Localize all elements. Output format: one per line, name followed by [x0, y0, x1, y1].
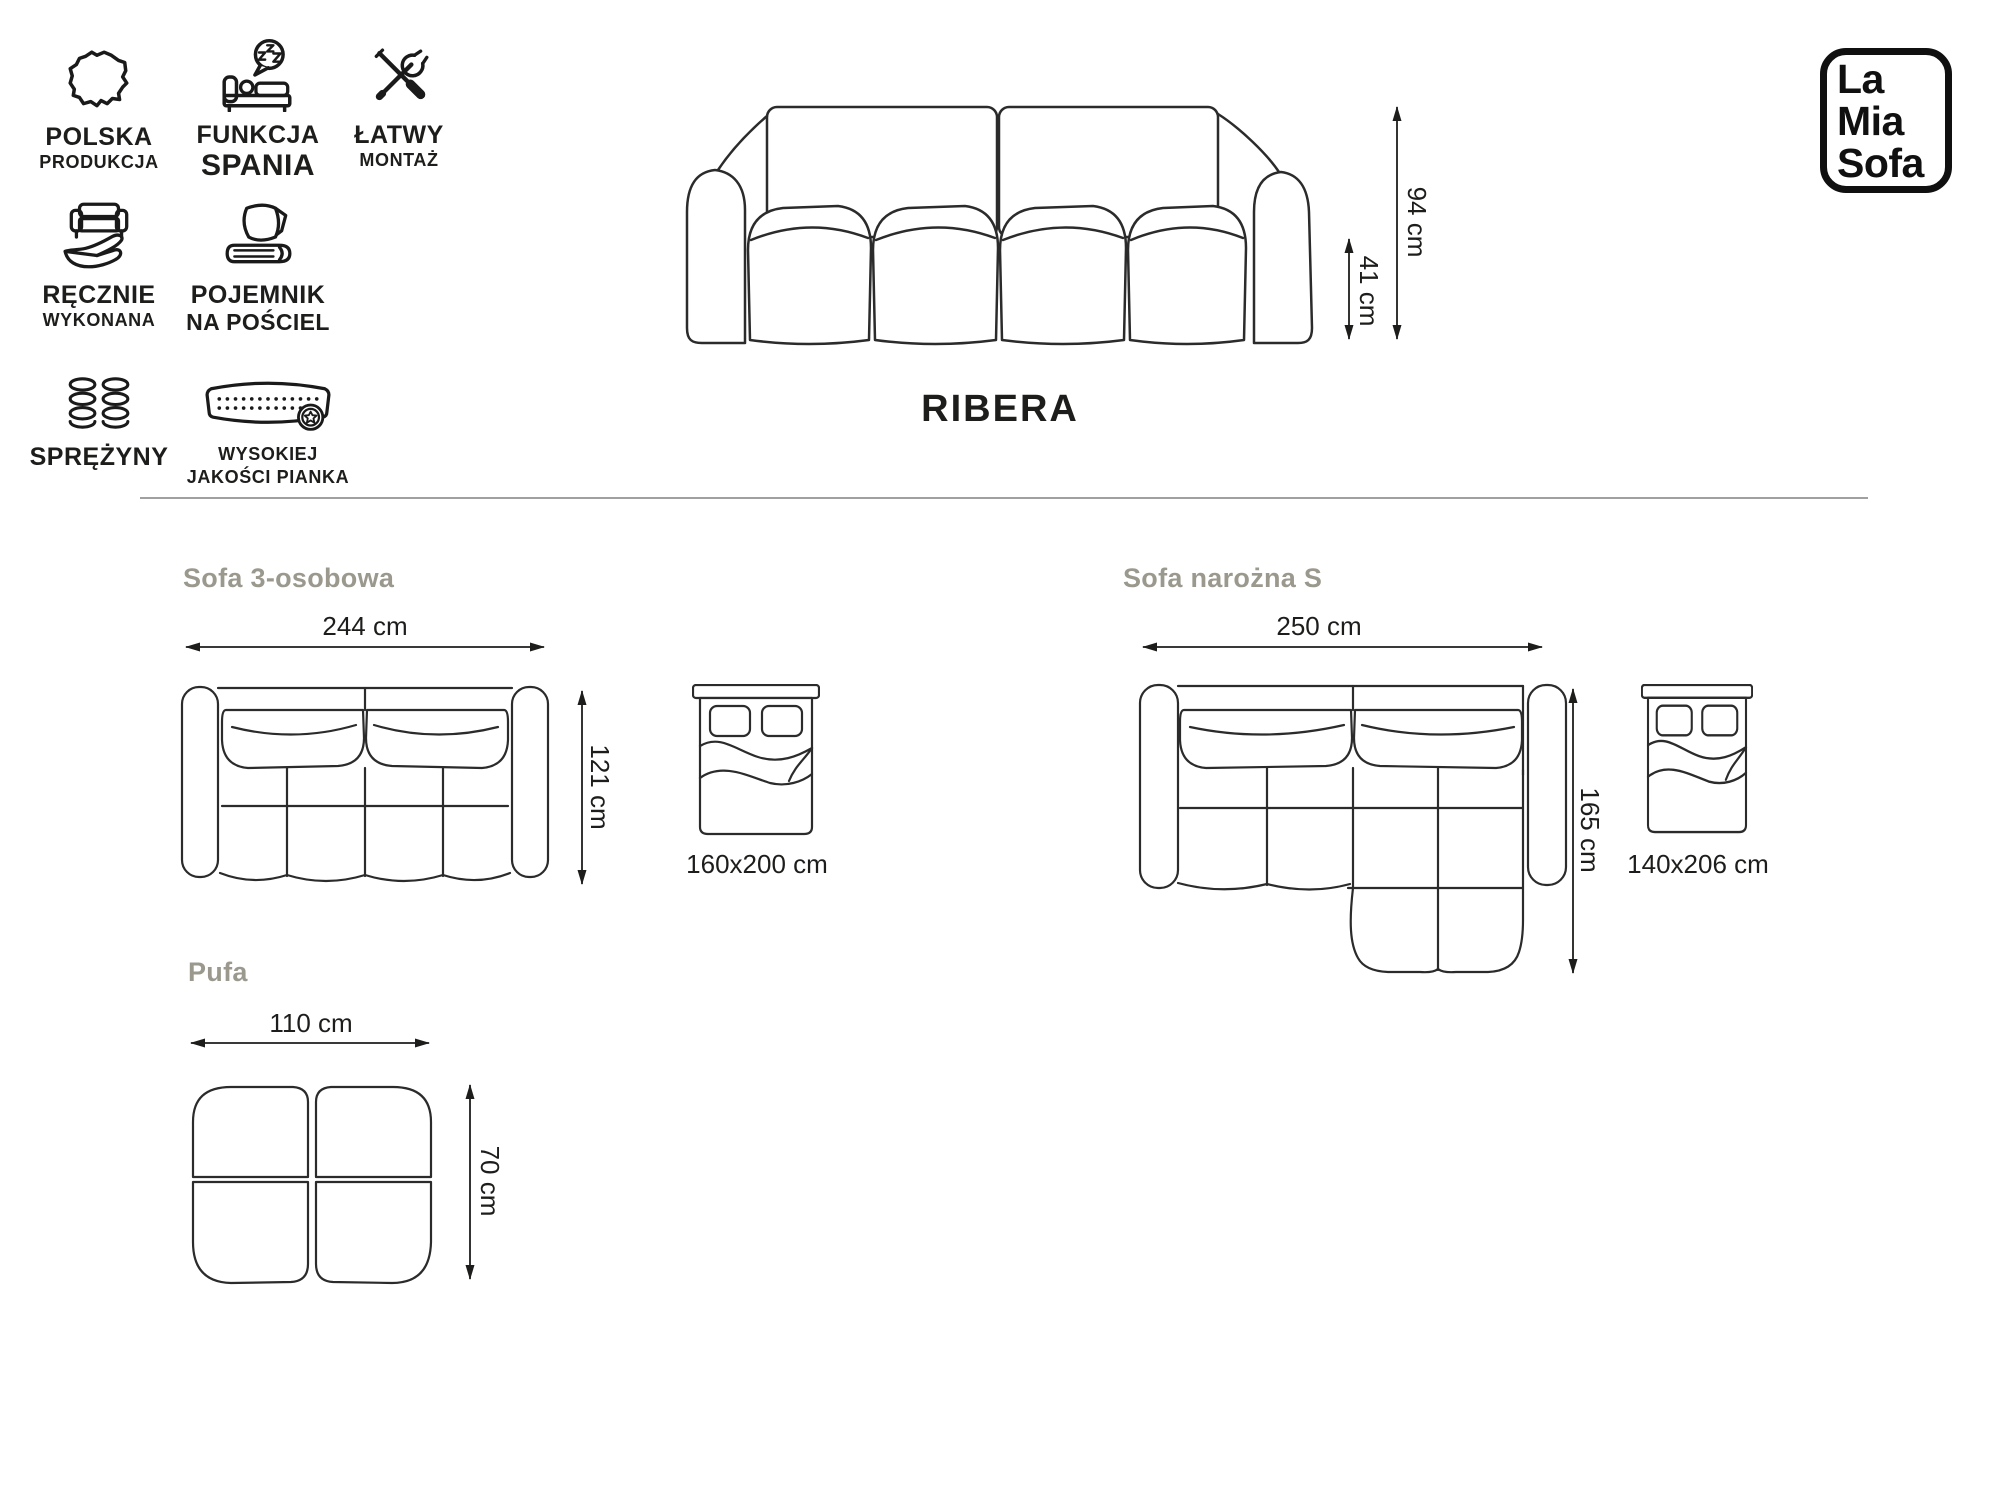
sleep-function-icon — [216, 36, 300, 112]
feature-sublabel: JAKOŚCI PIANKA — [187, 466, 349, 489]
height-dimension-label: 94 cm — [1402, 152, 1432, 292]
bed-size-label: 160x200 cm — [657, 849, 857, 880]
feature-label: WYSOKIEJ — [218, 443, 318, 466]
feature-label: ŁATWY — [354, 121, 444, 149]
feature-label: POLSKA — [45, 123, 152, 151]
springs-icon — [64, 372, 134, 434]
width-dimension-label: 244 cm — [265, 611, 465, 642]
tools-icon — [366, 36, 432, 112]
feature-polska-produkcja: POLSKA PRODUKCJA — [14, 38, 184, 174]
bed-icon — [692, 684, 820, 836]
divider — [140, 497, 1868, 499]
pufa-top-view-drawing — [185, 1080, 439, 1290]
depth-dimension-label: 70 cm — [475, 1111, 505, 1251]
feature-label: RĘCZNIE — [42, 281, 155, 309]
width-dimension-arrow — [183, 639, 547, 655]
feature-sublabel: MONTAŻ — [359, 149, 438, 172]
variant-label-sofa-3-osobowa: Sofa 3-osobowa — [183, 563, 394, 594]
width-dimension-arrow — [1140, 639, 1545, 655]
sofa-front-view-drawing — [630, 90, 1330, 355]
seat-height-dimension-label: 41 cm — [1354, 221, 1384, 361]
hand-sofa-icon — [59, 196, 139, 272]
width-dimension-label: 250 cm — [1219, 611, 1419, 642]
brand-logo: La Mia Sofa — [1820, 48, 1952, 193]
feature-label: POJEMNIK — [191, 281, 326, 309]
feature-wysokiej-jakosci-pianka: WYSOKIEJ JAKOŚCI PIANKA — [168, 372, 368, 490]
feature-recznie-wykonana: RĘCZNIE WYKONANA — [14, 196, 184, 332]
feature-sublabel: WYKONANA — [43, 309, 156, 332]
feature-latwy-montaz: ŁATWY MONTAŻ — [314, 36, 484, 172]
spec-sheet: POLSKA PRODUKCJA FUNKCJA SPANIA — [0, 0, 2000, 1500]
variant-label-sofa-narozna-s: Sofa narożna S — [1123, 563, 1322, 594]
depth-dimension-label: 121 cm — [585, 717, 615, 857]
brand-line: La — [1837, 58, 1945, 100]
bed-size-label: 140x206 cm — [1598, 849, 1798, 880]
poland-map-icon — [63, 38, 135, 114]
feature-label: SPRĘŻYNY — [30, 443, 169, 471]
bedding-icon — [220, 196, 296, 272]
page-title: RIBERA — [850, 388, 1150, 431]
feature-label: FUNKCJA — [197, 121, 320, 149]
sofa-3-osobowa-top-view-drawing — [180, 680, 560, 898]
feature-sublabel: SPANIA — [201, 149, 315, 182]
brand-line: Sofa — [1837, 142, 1945, 184]
feature-sprezyny: SPRĘŻYNY — [14, 372, 184, 471]
sofa-narozna-top-view-drawing — [1130, 680, 1580, 980]
feature-sublabel: NA POŚCIEL — [186, 309, 330, 335]
brand-line: Mia — [1837, 100, 1945, 142]
bed-icon — [1641, 684, 1753, 834]
foam-icon — [201, 372, 335, 434]
feature-pojemnik-na-posciel: POJEMNIK NA POŚCIEL — [173, 196, 343, 335]
variant-label-pufa: Pufa — [188, 957, 248, 988]
feature-sublabel: PRODUKCJA — [39, 151, 158, 174]
width-dimension-arrow — [188, 1035, 432, 1051]
